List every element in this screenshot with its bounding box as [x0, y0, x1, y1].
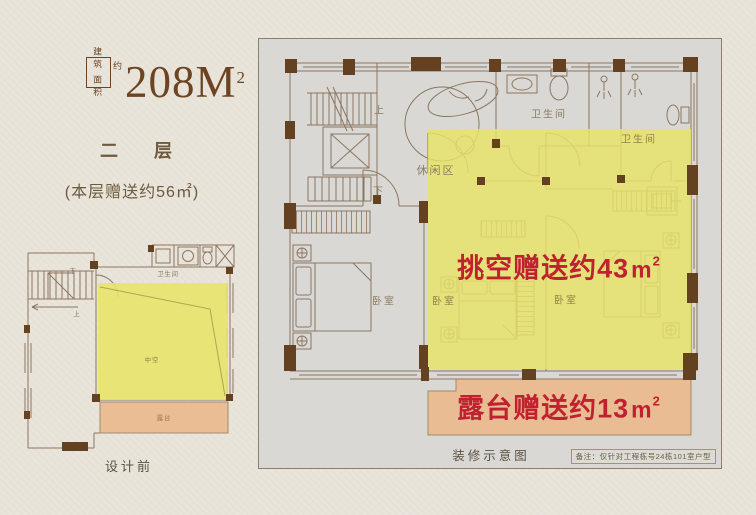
- logo-box-row1: 建筑: [88, 46, 108, 71]
- logo-approx: 约: [113, 59, 122, 72]
- void-gift-unit: m: [631, 257, 652, 283]
- small-floor-plan: 下 上 卫生间 中空 露台: [22, 243, 236, 457]
- terrace-gift-text: 露台赠送约13: [457, 394, 629, 424]
- floor-gift-note: (本层赠送约56㎡): [22, 178, 242, 202]
- void-gift-label: 挑空赠送约43m2: [457, 247, 661, 286]
- main-plan-up-label: 上: [374, 102, 386, 117]
- bedroom-right-label: 卧室: [554, 292, 578, 307]
- logo-area-value: 208M2: [125, 57, 246, 101]
- void-gift-sup: 2: [653, 254, 661, 269]
- terrace-gift-label: 露台赠送约13m2: [457, 387, 661, 426]
- small-plan-void-highlight: [98, 283, 228, 400]
- small-plan-bathroom-label: 卫生间: [157, 270, 179, 279]
- bedroom-left-label: 卧室: [372, 293, 396, 308]
- small-plan-void-label: 中空: [145, 356, 159, 365]
- bottom-window-band: [290, 371, 689, 379]
- area-logo: 建筑 面积 约 208M2: [86, 57, 246, 101]
- terrace-gift-sup: 2: [653, 394, 661, 409]
- main-plan-note: 备注：仅针对工程栋号24栋101室户型: [571, 449, 716, 464]
- main-floor-plan: 上 下 休闲区 卫生间 卫生间 卧室 卧室 卧室 挑空赠送约43m2 露台赠送约…: [258, 38, 722, 469]
- floor-title: 二 层: [58, 137, 223, 163]
- logo-box-row2: 面积: [88, 74, 108, 99]
- logo-area-number: 208M: [125, 57, 237, 107]
- small-plan-terrace-label: 露台: [157, 414, 171, 423]
- brochure-page: { "colors": { "page_bg": "#e9e4da", "pla…: [0, 0, 756, 515]
- leisure-area-label: 休闲区: [417, 162, 456, 178]
- small-floor-plan-svg: [22, 243, 236, 457]
- small-plan-caption: 设计前: [22, 456, 236, 475]
- bedroom-mid-label: 卧室: [432, 293, 456, 308]
- area-logo-box: 建筑 面积: [86, 57, 111, 88]
- small-plan-up-label: 上: [73, 310, 80, 319]
- bathroom-top-label: 卫生间: [531, 106, 567, 121]
- terrace-gift-unit: m: [631, 397, 652, 423]
- void-gift-text: 挑空赠送约43: [457, 254, 629, 284]
- main-plan-down-label: 下: [373, 183, 385, 198]
- small-plan-down-label: 下: [69, 267, 76, 276]
- bathroom-right-label: 卫生间: [621, 131, 657, 146]
- logo-area-sup: 2: [237, 68, 247, 87]
